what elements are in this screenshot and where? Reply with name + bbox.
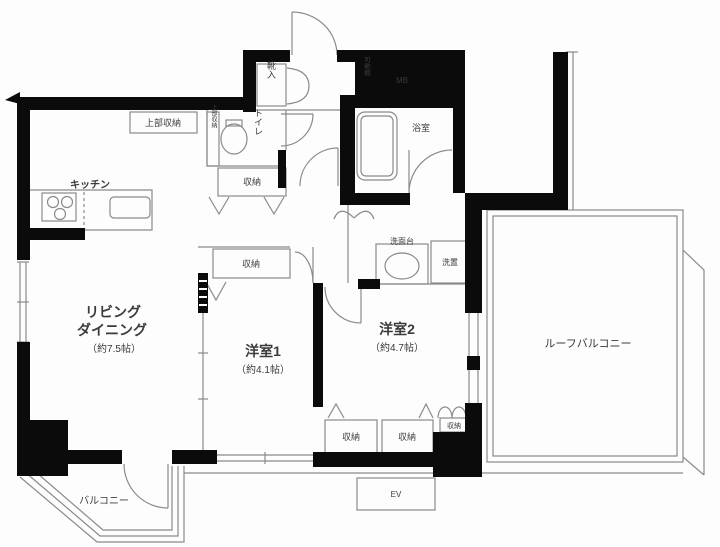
elevator-label: EV <box>391 490 402 499</box>
kitchen-label: キッチン <box>70 179 110 191</box>
toilet-label: トイレ <box>253 109 263 136</box>
wall-bath-bottom <box>340 193 410 205</box>
living-dining-label-line1: リビング <box>85 304 141 320</box>
wall-toilet-right <box>278 150 286 188</box>
window-mullion <box>467 356 480 370</box>
wall-bedroom-divider <box>313 283 323 407</box>
washstand-label: 洗面台 <box>390 236 414 246</box>
wall-living-bottom-left <box>68 450 122 464</box>
wall-bedroom2-top-chunk <box>358 279 380 289</box>
wall-living-bottom-right <box>172 450 217 464</box>
bedroom2-area-label: （約4.7帖） <box>370 341 424 354</box>
upper-storage-label: 上部収納 <box>145 117 181 128</box>
bedroom1-area-label: （約4.1帖） <box>236 363 290 376</box>
wall-bath-left <box>340 108 355 205</box>
bedroom2-closet-right-label: 収納 <box>398 431 416 442</box>
laundry-label: 洗置 <box>442 257 458 267</box>
wall-notch-right <box>553 52 568 193</box>
floorplan-canvas: リビング ダイニング （約7.5帖） 洋室1 （約4.1帖） 洋室2 （約4.7… <box>0 0 720 547</box>
bedroom1-closet-label: 収納 <box>242 258 260 269</box>
meter-box-label: MB <box>396 76 408 85</box>
bedroom1-label: 洋室1 <box>245 343 281 359</box>
hall-closet-label: 収納 <box>243 176 261 187</box>
wall-kitchen-bottom <box>28 228 85 240</box>
bedroom2-closet-left-label: 収納 <box>342 431 360 442</box>
living-dining-area-label: （約7.5帖） <box>87 342 141 355</box>
wall-notch-bottom <box>465 193 568 210</box>
wall-entrance-right <box>337 50 465 62</box>
bedroom2-label: 洋室2 <box>379 321 415 337</box>
wall-bath-right <box>453 108 465 193</box>
wall-bottomright-mass <box>433 432 482 477</box>
shoe-cabinet-label: 靴入 <box>266 60 276 79</box>
floorplan-page: リビング ダイニング （約7.5帖） 洋室1 （約4.1帖） 洋室2 （約4.7… <box>0 0 720 547</box>
bedroom2-small-closet-label: 収納 <box>447 421 461 430</box>
wall-bedroom2-bottom <box>313 452 433 467</box>
living-dining-label-line2: ダイニング <box>77 322 147 338</box>
balcony-label: バルコニー <box>79 495 129 507</box>
wall-right-lower <box>465 403 482 432</box>
wall-bath-top <box>340 95 465 108</box>
wall-corner-bottomleft <box>17 420 68 476</box>
wall-right-upper <box>465 210 482 313</box>
roof-balcony-label: ルーフバルコニー <box>544 337 631 350</box>
partition-pocket <box>198 273 208 313</box>
toilet-upper-storage-label: 上部収納 <box>210 103 217 129</box>
bathroom-label: 浴室 <box>412 122 430 133</box>
